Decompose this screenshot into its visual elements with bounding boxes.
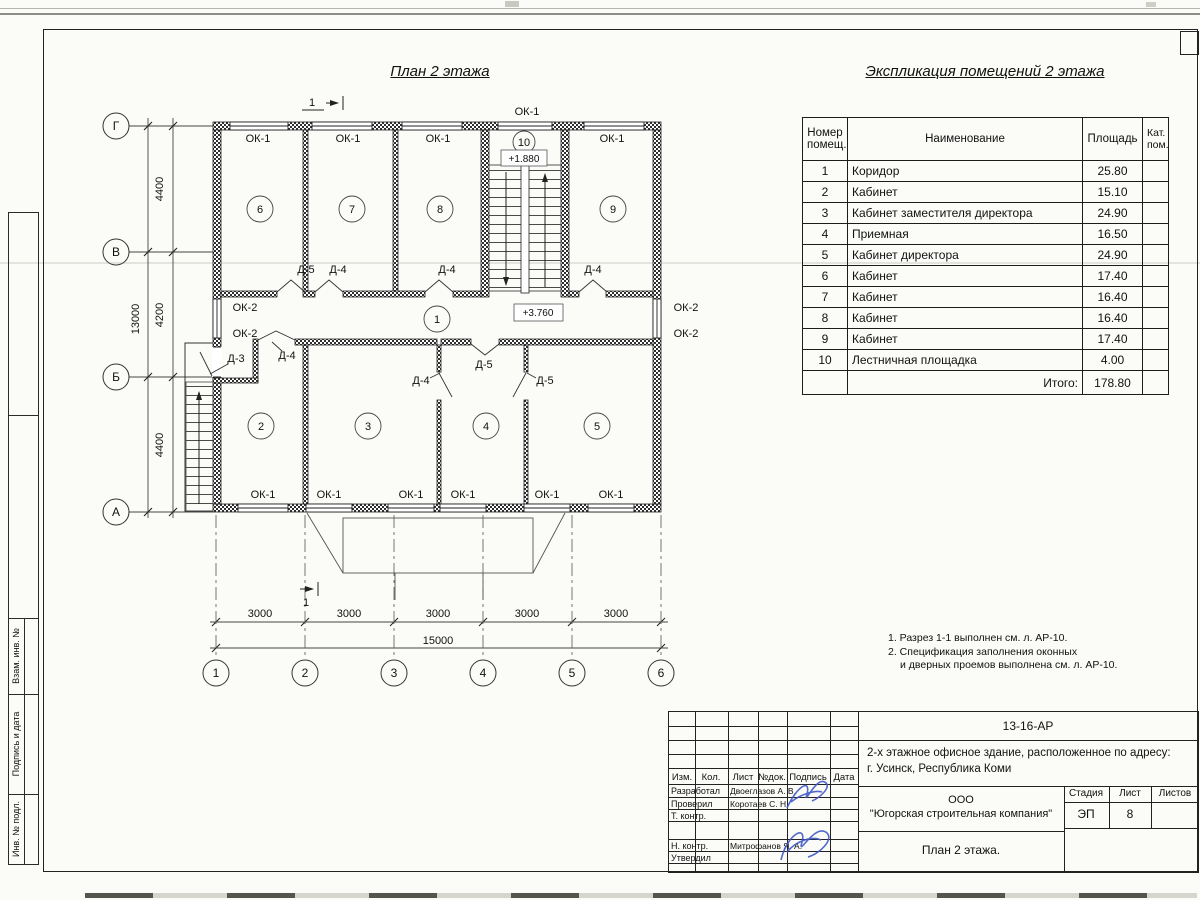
tb-line [669, 768, 858, 769]
tb-line [669, 821, 858, 822]
window-tag: ОК-1 [600, 133, 625, 145]
note-line: и дверных проемов выполнена см. л. АР-10… [888, 659, 1117, 673]
cell: Кабинет [848, 287, 1083, 308]
cell: 2 [803, 182, 848, 203]
col-cat: Кат. пом. [1143, 118, 1169, 161]
window-tag: ОК-1 [599, 489, 624, 501]
room-number: 8 [437, 204, 443, 216]
table-row: 6Кабинет17.40 [803, 266, 1169, 287]
note-line: 2. Спецификация заполнения оконных [888, 646, 1117, 660]
cell [1143, 161, 1169, 182]
window-tag: ОК-1 [535, 489, 560, 501]
window-tag: ОК-1 [317, 489, 342, 501]
wall-stair-left [481, 130, 489, 297]
partition-2-3 [303, 345, 308, 504]
stamp-podpis-label: Подпись и дата [11, 712, 21, 777]
dim-label: 15000 [423, 635, 454, 647]
cell: 25.80 [1083, 161, 1143, 182]
cell: 4 [803, 224, 848, 245]
sheet-title: План 2 этажа. [922, 843, 1000, 857]
frame-corner-box [1180, 31, 1199, 55]
window-tag: ОК-2 [674, 328, 699, 340]
cell: 4.00 [1083, 350, 1143, 371]
stamp-left-line-a [8, 212, 9, 864]
cell: Кабинет [848, 182, 1083, 203]
window-tag: ОК-2 [233, 302, 258, 314]
note-line: 1. Разрез 1-1 выполнен см. л. АР-10. [888, 632, 1117, 646]
table-header-row: Номер помещ. Наименование Площадь Кат. п… [803, 118, 1169, 161]
partition-7-8 [393, 130, 398, 292]
window-tag: ОК-1 [246, 133, 271, 145]
tb-line [858, 712, 859, 872]
stamp-left-line-b [38, 212, 39, 864]
room-schedule-table: Номер помещ. Наименование Площадь Кат. п… [802, 117, 1169, 395]
partition-3-4 [437, 345, 441, 372]
dim-label: 3000 [426, 608, 450, 620]
dim-label: 4400 [154, 433, 166, 457]
cell [1143, 329, 1169, 350]
table-row: 10Лестничная площадка4.00 [803, 350, 1169, 371]
doc-code: 13-16-АР [1003, 719, 1054, 733]
cell: 8 [803, 308, 848, 329]
cell [1143, 224, 1169, 245]
scan-bottom-dashes [85, 893, 1197, 898]
col-area: Площадь [1083, 118, 1143, 161]
section-number: 1 [309, 97, 315, 109]
role-developed: Разработал [671, 786, 720, 796]
title-block: 13-16-АР 2-х этажное офисное здание, рас… [668, 711, 1199, 873]
name-developed: Двоеглазов А. В. [730, 786, 796, 796]
cell: 9 [803, 329, 848, 350]
cell: 5 [803, 245, 848, 266]
role-ncontrol: Н. контр. [671, 841, 708, 851]
partition-3-4 [437, 400, 441, 504]
table-row: 1Коридор25.80 [803, 161, 1169, 182]
tb-line [669, 851, 858, 852]
hdr-data: Дата [833, 772, 854, 783]
col-name: Наименование [848, 118, 1083, 161]
tb-line [1064, 828, 1198, 829]
room-number: 7 [349, 204, 355, 216]
cell: Кабинет заместителя директора [848, 203, 1083, 224]
room-number: 9 [610, 204, 616, 216]
cell: Приемная [848, 224, 1083, 245]
dim-label: 3000 [604, 608, 628, 620]
tb-line [669, 784, 858, 785]
cell: 6 [803, 266, 848, 287]
window-tag: ОК-1 [426, 133, 451, 145]
object-line-2: г. Усинск, Республика Коми [867, 763, 1011, 775]
room-number: 6 [257, 204, 263, 216]
stage-value: ЭП [1077, 807, 1094, 821]
sheets-label: Листов [1159, 788, 1192, 799]
tb-line [669, 797, 858, 798]
axis-row-label: А [112, 505, 120, 519]
room-number: 4 [483, 421, 489, 433]
table-row: 2Кабинет15.10 [803, 182, 1169, 203]
opening-tags: ОК-1 ОК-1 ОК-1 ОК-1 ОК-1 ОК-1 ОК-1 ОК-1 … [227, 106, 698, 501]
room-number: 1 [434, 314, 440, 326]
door-tag: Д-4 [412, 375, 429, 387]
tb-line [728, 712, 729, 872]
cell: 16.50 [1083, 224, 1143, 245]
hdr-izm: Изм. [672, 772, 692, 783]
cell [1143, 182, 1169, 203]
cell: 3 [803, 203, 848, 224]
dim-label: 3000 [248, 608, 272, 620]
vestibule-wall [253, 339, 258, 383]
corridor-wall [221, 291, 277, 297]
door-tag: Д-5 [475, 359, 492, 371]
tb-line [858, 786, 1198, 787]
cell: Кабинет [848, 266, 1083, 287]
table-total-row: Итого: 178.80 [803, 371, 1169, 395]
scan-edge-line-1 [0, 8, 1200, 9]
tb-line [669, 809, 858, 810]
stamp-inv-label: Инв. № подл. [11, 801, 21, 857]
cell [1143, 350, 1169, 371]
window-tag: ОК-2 [233, 328, 258, 340]
name-ncontrol: Митрофанов Я. А. [730, 841, 802, 851]
door-tag: Д-5 [536, 375, 553, 387]
corridor-wall [499, 339, 653, 345]
axis-col-label: 3 [391, 666, 398, 680]
name-checked: Коротаев С. Н. [730, 799, 788, 809]
window-tag: ОК-1 [336, 133, 361, 145]
scan-smudge-2 [1146, 2, 1156, 7]
total-value: 178.80 [1083, 371, 1143, 395]
drawing-sheet: Взам. инв. № Подпись и дата Инв. № подл.… [0, 0, 1200, 900]
exterior-stair [185, 343, 213, 511]
dim-label: 13000 [130, 304, 142, 335]
notes: 1. Разрез 1-1 выполнен см. л. АР-10. 2. … [888, 632, 1117, 673]
total-label: Итого: [848, 371, 1083, 395]
axis-col-label: 4 [480, 666, 487, 680]
axis-col-label: 6 [658, 666, 665, 680]
cell [1143, 266, 1169, 287]
section-mark-bottom [300, 582, 318, 596]
cell: 7 [803, 287, 848, 308]
table-title: Экспликация помещений 2 этажа [820, 63, 1150, 80]
window-tag: ОК-2 [674, 302, 699, 314]
door-tag: Д-5 [297, 264, 314, 276]
cell [1143, 287, 1169, 308]
col-number: Номер помещ. [803, 118, 848, 161]
cell: Кабинет директора [848, 245, 1083, 266]
table-row: 8Кабинет16.40 [803, 308, 1169, 329]
cell: Коридор [848, 161, 1083, 182]
corridor-wall [453, 291, 481, 297]
tb-line [1109, 786, 1110, 828]
stamp-inner-line [24, 618, 25, 864]
cell: Кабинет [848, 308, 1083, 329]
room-number: 10 [518, 137, 530, 149]
window-tag: ОК-1 [515, 106, 540, 118]
company-line-2: "Югорская строительная компания" [870, 808, 1052, 820]
axis-col-label: 5 [569, 666, 576, 680]
door-tag: Д-4 [438, 264, 455, 276]
plan-title: План 2 этажа [330, 63, 550, 80]
section-number: 1 [303, 597, 309, 609]
axis-row-label: Г [113, 119, 120, 133]
tb-line [1064, 786, 1065, 872]
tb-line [830, 712, 831, 872]
cell: 17.40 [1083, 266, 1143, 287]
hdr-podpis: Подпись [789, 772, 827, 783]
role-tcontrol: Т. контр. [671, 811, 706, 821]
partition-4-5 [524, 400, 528, 504]
stairwell [489, 163, 561, 293]
stamp-vzam-label: Взам. инв. № [11, 628, 21, 684]
stamp-div-2 [8, 415, 39, 416]
window-tag: ОК-1 [251, 489, 276, 501]
floor-plan: Г В Б А 1 2 3 4 5 6 4400 4200 4400 13000… [80, 80, 725, 708]
window-tag: ОК-1 [451, 489, 476, 501]
table-row: 9Кабинет17.40 [803, 329, 1169, 350]
tb-line [669, 740, 858, 741]
vestibule-wall [213, 378, 258, 383]
corridor-wall [441, 339, 471, 345]
hdr-list: Лист [733, 772, 754, 783]
partition-4-5 [524, 345, 528, 372]
cell: 15.10 [1083, 182, 1143, 203]
dim-label: 3000 [337, 608, 361, 620]
tb-line [669, 863, 858, 864]
axis-row-label: В [112, 245, 120, 259]
cell [1143, 308, 1169, 329]
sheet-label: Лист [1119, 788, 1141, 799]
cell: 16.40 [1083, 287, 1143, 308]
corridor-wall [295, 339, 437, 345]
room-number: 3 [365, 421, 371, 433]
object-line-1: 2-х этажное офисное здание, расположенно… [867, 747, 1171, 759]
dim-label: 4200 [154, 303, 166, 327]
dim-label: 3000 [515, 608, 539, 620]
stair-stringer [521, 163, 529, 293]
cell: 10 [803, 350, 848, 371]
table-row: 5Кабинет директора24.90 [803, 245, 1169, 266]
axis-col-label: 2 [302, 666, 309, 680]
cell: Кабинет [848, 329, 1083, 350]
door-tag: Д-3 [227, 353, 244, 365]
corridor-wall [343, 291, 425, 297]
cell: 24.90 [1083, 245, 1143, 266]
tb-line [669, 839, 858, 840]
scan-smudge-1 [505, 1, 519, 7]
role-checked: Проверил [671, 799, 712, 809]
tb-line [669, 726, 858, 727]
hdr-kol: Кол. [702, 772, 721, 783]
tb-line [1064, 802, 1198, 803]
cell [803, 371, 848, 395]
tb-line [1151, 786, 1152, 828]
cell [1143, 371, 1169, 395]
cell: 24.90 [1083, 203, 1143, 224]
wall-stair-right [561, 130, 569, 297]
tb-line [858, 740, 1198, 741]
corridor-wall [606, 291, 653, 297]
table-row: 4Приемная16.50 [803, 224, 1169, 245]
canopy [307, 513, 565, 600]
room-number: 5 [594, 421, 600, 433]
company-line-1: ООО [948, 794, 974, 806]
cell: 16.40 [1083, 308, 1143, 329]
corridor-wall [569, 291, 579, 297]
role-approved: Утвердил [671, 853, 711, 863]
door-tag: Д-4 [278, 350, 295, 362]
scan-edge-line-2 [0, 13, 1200, 15]
room-number: 2 [258, 421, 264, 433]
cell: Лестничная площадка [848, 350, 1083, 371]
table-row: 3Кабинет заместителя директора24.90 [803, 203, 1169, 224]
dim-label: 4400 [154, 177, 166, 201]
cell [1143, 245, 1169, 266]
stamp-div-1 [8, 212, 39, 213]
tb-line [669, 754, 858, 755]
cell [1143, 203, 1169, 224]
dim-ticks [144, 122, 665, 652]
door-tag: Д-4 [329, 264, 346, 276]
axis-col-label: 1 [213, 666, 220, 680]
cell: 1 [803, 161, 848, 182]
axis-row-label: Б [112, 370, 120, 384]
stamp-div-6 [8, 864, 39, 865]
sheet-value: 8 [1127, 807, 1134, 821]
window-tag: ОК-1 [399, 489, 424, 501]
stage-label: Стадия [1069, 788, 1103, 799]
level-mark: +1.880 [509, 154, 540, 165]
level-mark: +3.760 [523, 308, 554, 319]
hdr-ndok: №док. [758, 772, 786, 783]
cell: 17.40 [1083, 329, 1143, 350]
door-tag: Д-4 [584, 264, 601, 276]
tb-line [858, 831, 1064, 832]
table-row: 7Кабинет16.40 [803, 287, 1169, 308]
